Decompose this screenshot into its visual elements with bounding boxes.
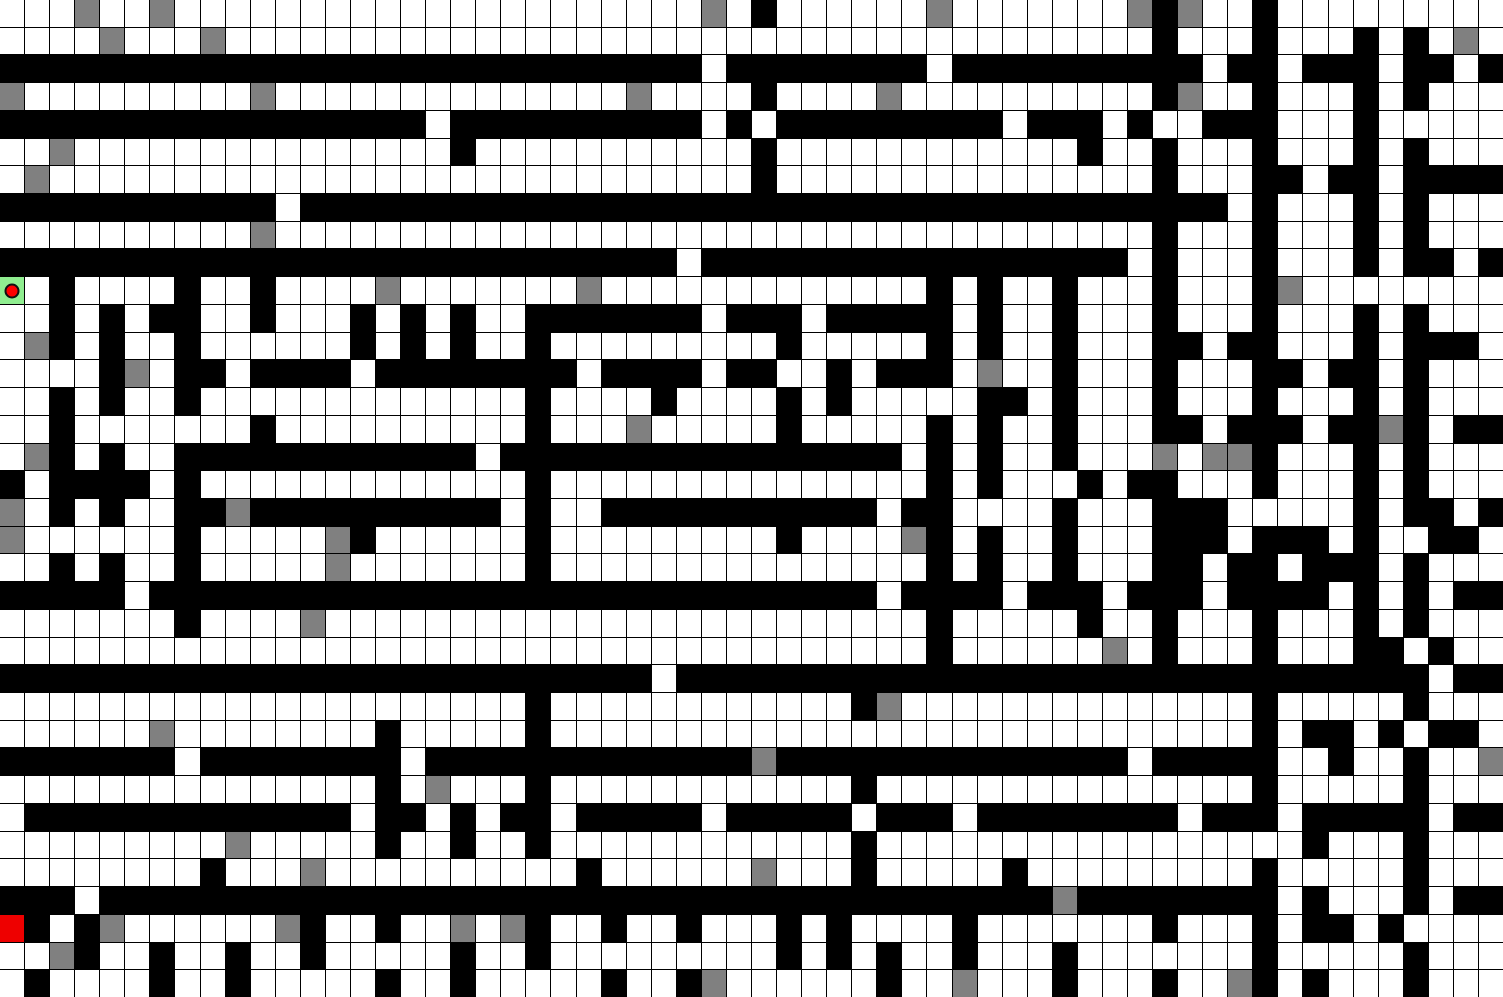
cell-floor	[1103, 582, 1127, 609]
cell-wall	[827, 943, 851, 970]
cell-wall	[1153, 249, 1177, 276]
cell-wall	[451, 111, 475, 138]
cell-floor	[301, 222, 325, 249]
cell-floor	[75, 776, 99, 803]
cell-floor	[1003, 83, 1027, 110]
cell-wall	[125, 249, 149, 276]
cell-floor	[1128, 360, 1152, 387]
cell-floor	[100, 83, 124, 110]
cell-floor	[1153, 832, 1177, 859]
cell-wall	[75, 194, 99, 221]
cell-floor	[1429, 915, 1453, 942]
cell-wall	[927, 887, 951, 914]
cell-floor	[175, 222, 199, 249]
cell-floor	[75, 859, 99, 886]
cell-wall	[1303, 527, 1327, 554]
cell-wall	[902, 499, 926, 526]
cell-wall	[351, 249, 375, 276]
cell-wall	[1153, 277, 1177, 304]
cell-wall	[602, 665, 626, 692]
cell-floor	[526, 222, 550, 249]
cell-floor	[978, 721, 1002, 748]
cell-floor	[1078, 277, 1102, 304]
cell-floor	[1028, 305, 1052, 332]
cell-gray-block	[251, 83, 275, 110]
cell-wall	[251, 748, 275, 775]
cell-gray-block	[50, 139, 74, 166]
cell-floor	[1228, 166, 1252, 193]
cell-floor	[1228, 776, 1252, 803]
cell-wall	[1028, 665, 1052, 692]
cell-gray-block	[1479, 748, 1503, 775]
cell-wall	[1053, 582, 1077, 609]
cell-floor	[501, 527, 525, 554]
cell-floor	[702, 55, 726, 82]
cell-floor	[1454, 111, 1478, 138]
maze-grid[interactable]	[0, 0, 1503, 997]
cell-floor	[1053, 776, 1077, 803]
cell-wall	[25, 55, 49, 82]
cell-floor	[1228, 527, 1252, 554]
cell-wall	[1178, 554, 1202, 581]
cell-floor	[1078, 859, 1102, 886]
cell-floor	[1329, 194, 1353, 221]
cell-floor	[25, 360, 49, 387]
cell-wall	[677, 748, 701, 775]
cell-floor	[75, 305, 99, 332]
cell-wall	[1228, 748, 1252, 775]
cell-floor	[1379, 83, 1403, 110]
cell-wall	[25, 665, 49, 692]
cell-floor	[1454, 943, 1478, 970]
cell-floor	[1379, 527, 1403, 554]
cell-floor	[902, 721, 926, 748]
cell-floor	[827, 222, 851, 249]
cell-gray-block	[1103, 638, 1127, 665]
cell-floor	[100, 859, 124, 886]
cell-wall	[1028, 748, 1052, 775]
cell-floor	[1404, 721, 1428, 748]
cell-floor	[351, 693, 375, 720]
cell-wall	[301, 499, 325, 526]
cell-floor	[827, 0, 851, 27]
cell-wall	[1354, 444, 1378, 471]
cell-floor	[426, 859, 450, 886]
cell-floor	[150, 360, 174, 387]
cell-wall	[175, 388, 199, 415]
cell-floor	[1379, 166, 1403, 193]
cell-floor	[125, 693, 149, 720]
cell-floor	[1479, 222, 1503, 249]
cell-floor	[702, 776, 726, 803]
cell-floor	[201, 610, 225, 637]
cell-floor	[401, 416, 425, 443]
cell-wall	[827, 665, 851, 692]
cell-floor	[1203, 943, 1227, 970]
cell-wall	[326, 582, 350, 609]
cell-wall	[50, 111, 74, 138]
cell-floor	[75, 638, 99, 665]
cell-wall	[1253, 804, 1277, 831]
cell-wall	[1203, 748, 1227, 775]
cell-floor	[1429, 305, 1453, 332]
cell-wall	[927, 277, 951, 304]
cell-wall	[777, 416, 801, 443]
cell-wall	[802, 499, 826, 526]
cell-floor	[602, 776, 626, 803]
cell-wall	[326, 444, 350, 471]
cell-wall	[100, 444, 124, 471]
cell-floor	[1228, 139, 1252, 166]
cell-floor	[627, 915, 651, 942]
cell-wall	[602, 970, 626, 997]
cell-wall	[226, 748, 250, 775]
cell-floor	[1379, 222, 1403, 249]
cell-floor	[1178, 859, 1202, 886]
cell-wall	[526, 748, 550, 775]
cell-wall	[526, 333, 550, 360]
cell-wall	[752, 887, 776, 914]
cell-wall	[376, 970, 400, 997]
cell-wall	[251, 111, 275, 138]
cell-floor	[727, 0, 751, 27]
cell-floor	[1354, 859, 1378, 886]
cell-wall	[1404, 249, 1428, 276]
cell-wall	[777, 333, 801, 360]
cell-floor	[602, 333, 626, 360]
cell-floor	[978, 859, 1002, 886]
cell-floor	[150, 859, 174, 886]
cell-wall	[927, 194, 951, 221]
cell-wall	[326, 111, 350, 138]
cell-wall	[827, 915, 851, 942]
cell-floor	[702, 305, 726, 332]
cell-wall	[602, 249, 626, 276]
cell-wall	[602, 804, 626, 831]
cell-floor	[602, 139, 626, 166]
cell-floor	[1454, 360, 1478, 387]
cell-floor	[351, 943, 375, 970]
cell-wall	[326, 748, 350, 775]
cell-wall	[0, 887, 24, 914]
cell-floor	[1203, 915, 1227, 942]
cell-wall	[251, 416, 275, 443]
cell-wall	[451, 333, 475, 360]
cell-floor	[526, 970, 550, 997]
cell-floor	[902, 776, 926, 803]
cell-wall	[752, 360, 776, 387]
cell-floor	[1028, 943, 1052, 970]
cell-wall	[777, 943, 801, 970]
cell-floor	[501, 416, 525, 443]
cell-wall	[652, 582, 676, 609]
cell-wall	[175, 471, 199, 498]
cell-floor	[1128, 28, 1152, 55]
cell-wall	[677, 665, 701, 692]
cell-floor	[1203, 222, 1227, 249]
cell-floor	[1203, 388, 1227, 415]
cell-floor	[802, 970, 826, 997]
cell-floor	[100, 970, 124, 997]
cell-wall	[1078, 249, 1102, 276]
cell-floor	[677, 610, 701, 637]
cell-floor	[25, 499, 49, 526]
cell-floor	[953, 832, 977, 859]
cell-wall	[100, 804, 124, 831]
cell-floor	[978, 610, 1002, 637]
cell-floor	[476, 83, 500, 110]
cell-wall	[1228, 804, 1252, 831]
cell-wall	[1253, 249, 1277, 276]
cell-floor	[1178, 139, 1202, 166]
cell-floor	[1053, 610, 1077, 637]
cell-floor	[702, 943, 726, 970]
cell-floor	[1003, 582, 1027, 609]
cell-floor	[802, 554, 826, 581]
cell-wall	[1354, 471, 1378, 498]
cell-floor	[476, 166, 500, 193]
cell-gray-block	[25, 444, 49, 471]
cell-floor	[1128, 721, 1152, 748]
cell-floor	[1103, 139, 1127, 166]
cell-wall	[1103, 55, 1127, 82]
cell-floor	[827, 83, 851, 110]
cell-wall	[1354, 554, 1378, 581]
cell-floor	[1078, 970, 1102, 997]
cell-floor	[1429, 887, 1453, 914]
cell-wall	[251, 665, 275, 692]
cell-wall	[953, 111, 977, 138]
cell-floor	[1078, 527, 1102, 554]
cell-floor	[702, 416, 726, 443]
cell-wall	[577, 804, 601, 831]
cell-floor	[501, 388, 525, 415]
cell-floor	[376, 139, 400, 166]
cell-floor	[276, 222, 300, 249]
cell-wall	[201, 111, 225, 138]
cell-floor	[1429, 859, 1453, 886]
cell-floor	[1278, 0, 1302, 27]
cell-floor	[1454, 859, 1478, 886]
cell-wall	[1354, 249, 1378, 276]
cell-floor	[777, 0, 801, 27]
cell-floor	[1354, 832, 1378, 859]
cell-floor	[1379, 748, 1403, 775]
cell-wall	[326, 665, 350, 692]
cell-floor	[451, 527, 475, 554]
cell-floor	[1128, 305, 1152, 332]
cell-floor	[451, 610, 475, 637]
cell-floor	[1303, 638, 1327, 665]
cell-floor	[1203, 693, 1227, 720]
cell-wall	[1404, 388, 1428, 415]
cell-wall	[852, 665, 876, 692]
cell-floor	[75, 970, 99, 997]
cell-wall	[1253, 582, 1277, 609]
cell-floor	[1329, 83, 1353, 110]
cell-floor	[1479, 832, 1503, 859]
cell-floor	[927, 943, 951, 970]
cell-wall	[1303, 721, 1327, 748]
cell-wall	[1253, 748, 1277, 775]
cell-wall	[376, 582, 400, 609]
cell-floor	[251, 554, 275, 581]
cell-floor	[100, 166, 124, 193]
cell-gray-block	[301, 610, 325, 637]
cell-floor	[326, 610, 350, 637]
cell-floor	[476, 638, 500, 665]
cell-floor	[75, 832, 99, 859]
cell-wall	[727, 444, 751, 471]
cell-wall	[1078, 582, 1102, 609]
cell-floor	[551, 333, 575, 360]
cell-wall	[1153, 638, 1177, 665]
cell-floor	[25, 277, 49, 304]
cell-wall	[501, 748, 525, 775]
cell-floor	[125, 721, 149, 748]
cell-floor	[476, 28, 500, 55]
cell-floor	[1429, 554, 1453, 581]
cell-floor	[301, 139, 325, 166]
cell-wall	[1479, 249, 1503, 276]
cell-floor	[75, 527, 99, 554]
player-dot[interactable]	[5, 283, 20, 298]
cell-floor	[1354, 943, 1378, 970]
cell-floor	[125, 139, 149, 166]
cell-wall	[100, 665, 124, 692]
cell-wall	[827, 804, 851, 831]
cell-wall	[1028, 804, 1052, 831]
cell-floor	[1354, 748, 1378, 775]
cell-wall	[577, 887, 601, 914]
cell-floor	[1078, 83, 1102, 110]
cell-floor	[1153, 943, 1177, 970]
cell-floor	[602, 416, 626, 443]
cell-wall	[426, 582, 450, 609]
cell-wall	[1253, 638, 1277, 665]
cell-floor	[551, 471, 575, 498]
cell-floor	[276, 970, 300, 997]
cell-floor	[852, 333, 876, 360]
cell-wall	[1053, 527, 1077, 554]
cell-wall	[1404, 610, 1428, 637]
cell-wall	[75, 943, 99, 970]
cell-wall	[827, 388, 851, 415]
cell-goal[interactable]	[0, 915, 24, 942]
cell-floor	[100, 277, 124, 304]
cell-wall	[476, 499, 500, 526]
cell-wall	[677, 499, 701, 526]
cell-floor	[1203, 776, 1227, 803]
cell-floor	[1379, 444, 1403, 471]
cell-floor	[802, 360, 826, 387]
cell-floor	[0, 554, 24, 581]
cell-floor	[501, 693, 525, 720]
cell-wall	[1153, 915, 1177, 942]
cell-floor	[877, 582, 901, 609]
cell-floor	[201, 305, 225, 332]
cell-floor	[1028, 499, 1052, 526]
cell-floor	[25, 527, 49, 554]
cell-floor	[1078, 943, 1102, 970]
cell-wall	[1454, 527, 1478, 554]
cell-wall	[1028, 111, 1052, 138]
cell-floor	[351, 554, 375, 581]
cell-floor	[326, 166, 350, 193]
cell-wall	[727, 665, 751, 692]
cell-wall	[1253, 970, 1277, 997]
cell-wall	[301, 943, 325, 970]
cell-wall	[1078, 471, 1102, 498]
cell-floor	[50, 360, 74, 387]
cell-floor	[652, 638, 676, 665]
cell-floor	[877, 166, 901, 193]
cell-floor	[1178, 776, 1202, 803]
cell-floor	[802, 277, 826, 304]
cell-floor	[1103, 277, 1127, 304]
cell-wall	[1203, 804, 1227, 831]
cell-wall	[1178, 665, 1202, 692]
cell-floor	[1128, 388, 1152, 415]
cell-wall	[1479, 166, 1503, 193]
cell-floor	[201, 83, 225, 110]
cell-wall	[376, 249, 400, 276]
cell-floor	[251, 915, 275, 942]
cell-floor	[1429, 360, 1453, 387]
cell-floor	[376, 166, 400, 193]
cell-wall	[827, 748, 851, 775]
cell-wall	[251, 194, 275, 221]
cell-floor	[351, 610, 375, 637]
cell-floor	[551, 527, 575, 554]
cell-floor	[752, 943, 776, 970]
cell-wall	[1178, 55, 1202, 82]
cell-gray-block	[201, 28, 225, 55]
cell-wall	[1303, 804, 1327, 831]
cell-wall	[451, 665, 475, 692]
cell-floor	[852, 360, 876, 387]
cell-floor	[401, 0, 425, 27]
cell-wall	[677, 360, 701, 387]
cell-wall	[927, 610, 951, 637]
cell-floor	[1203, 83, 1227, 110]
cell-floor	[175, 693, 199, 720]
cell-start[interactable]	[0, 277, 24, 304]
cell-wall	[1153, 610, 1177, 637]
cell-wall	[125, 887, 149, 914]
cell-wall	[978, 804, 1002, 831]
cell-wall	[175, 582, 199, 609]
cell-wall	[927, 499, 951, 526]
cell-wall	[526, 305, 550, 332]
cell-wall	[451, 887, 475, 914]
cell-wall	[1404, 748, 1428, 775]
cell-floor	[1128, 943, 1152, 970]
cell-floor	[150, 83, 174, 110]
cell-floor	[50, 527, 74, 554]
cell-floor	[727, 554, 751, 581]
cell-floor	[376, 222, 400, 249]
cell-floor	[802, 610, 826, 637]
cell-floor	[927, 222, 951, 249]
cell-floor	[150, 333, 174, 360]
cell-floor	[451, 83, 475, 110]
cell-floor	[953, 360, 977, 387]
cell-floor	[727, 776, 751, 803]
cell-floor	[577, 333, 601, 360]
cell-wall	[1053, 305, 1077, 332]
cell-floor	[902, 970, 926, 997]
